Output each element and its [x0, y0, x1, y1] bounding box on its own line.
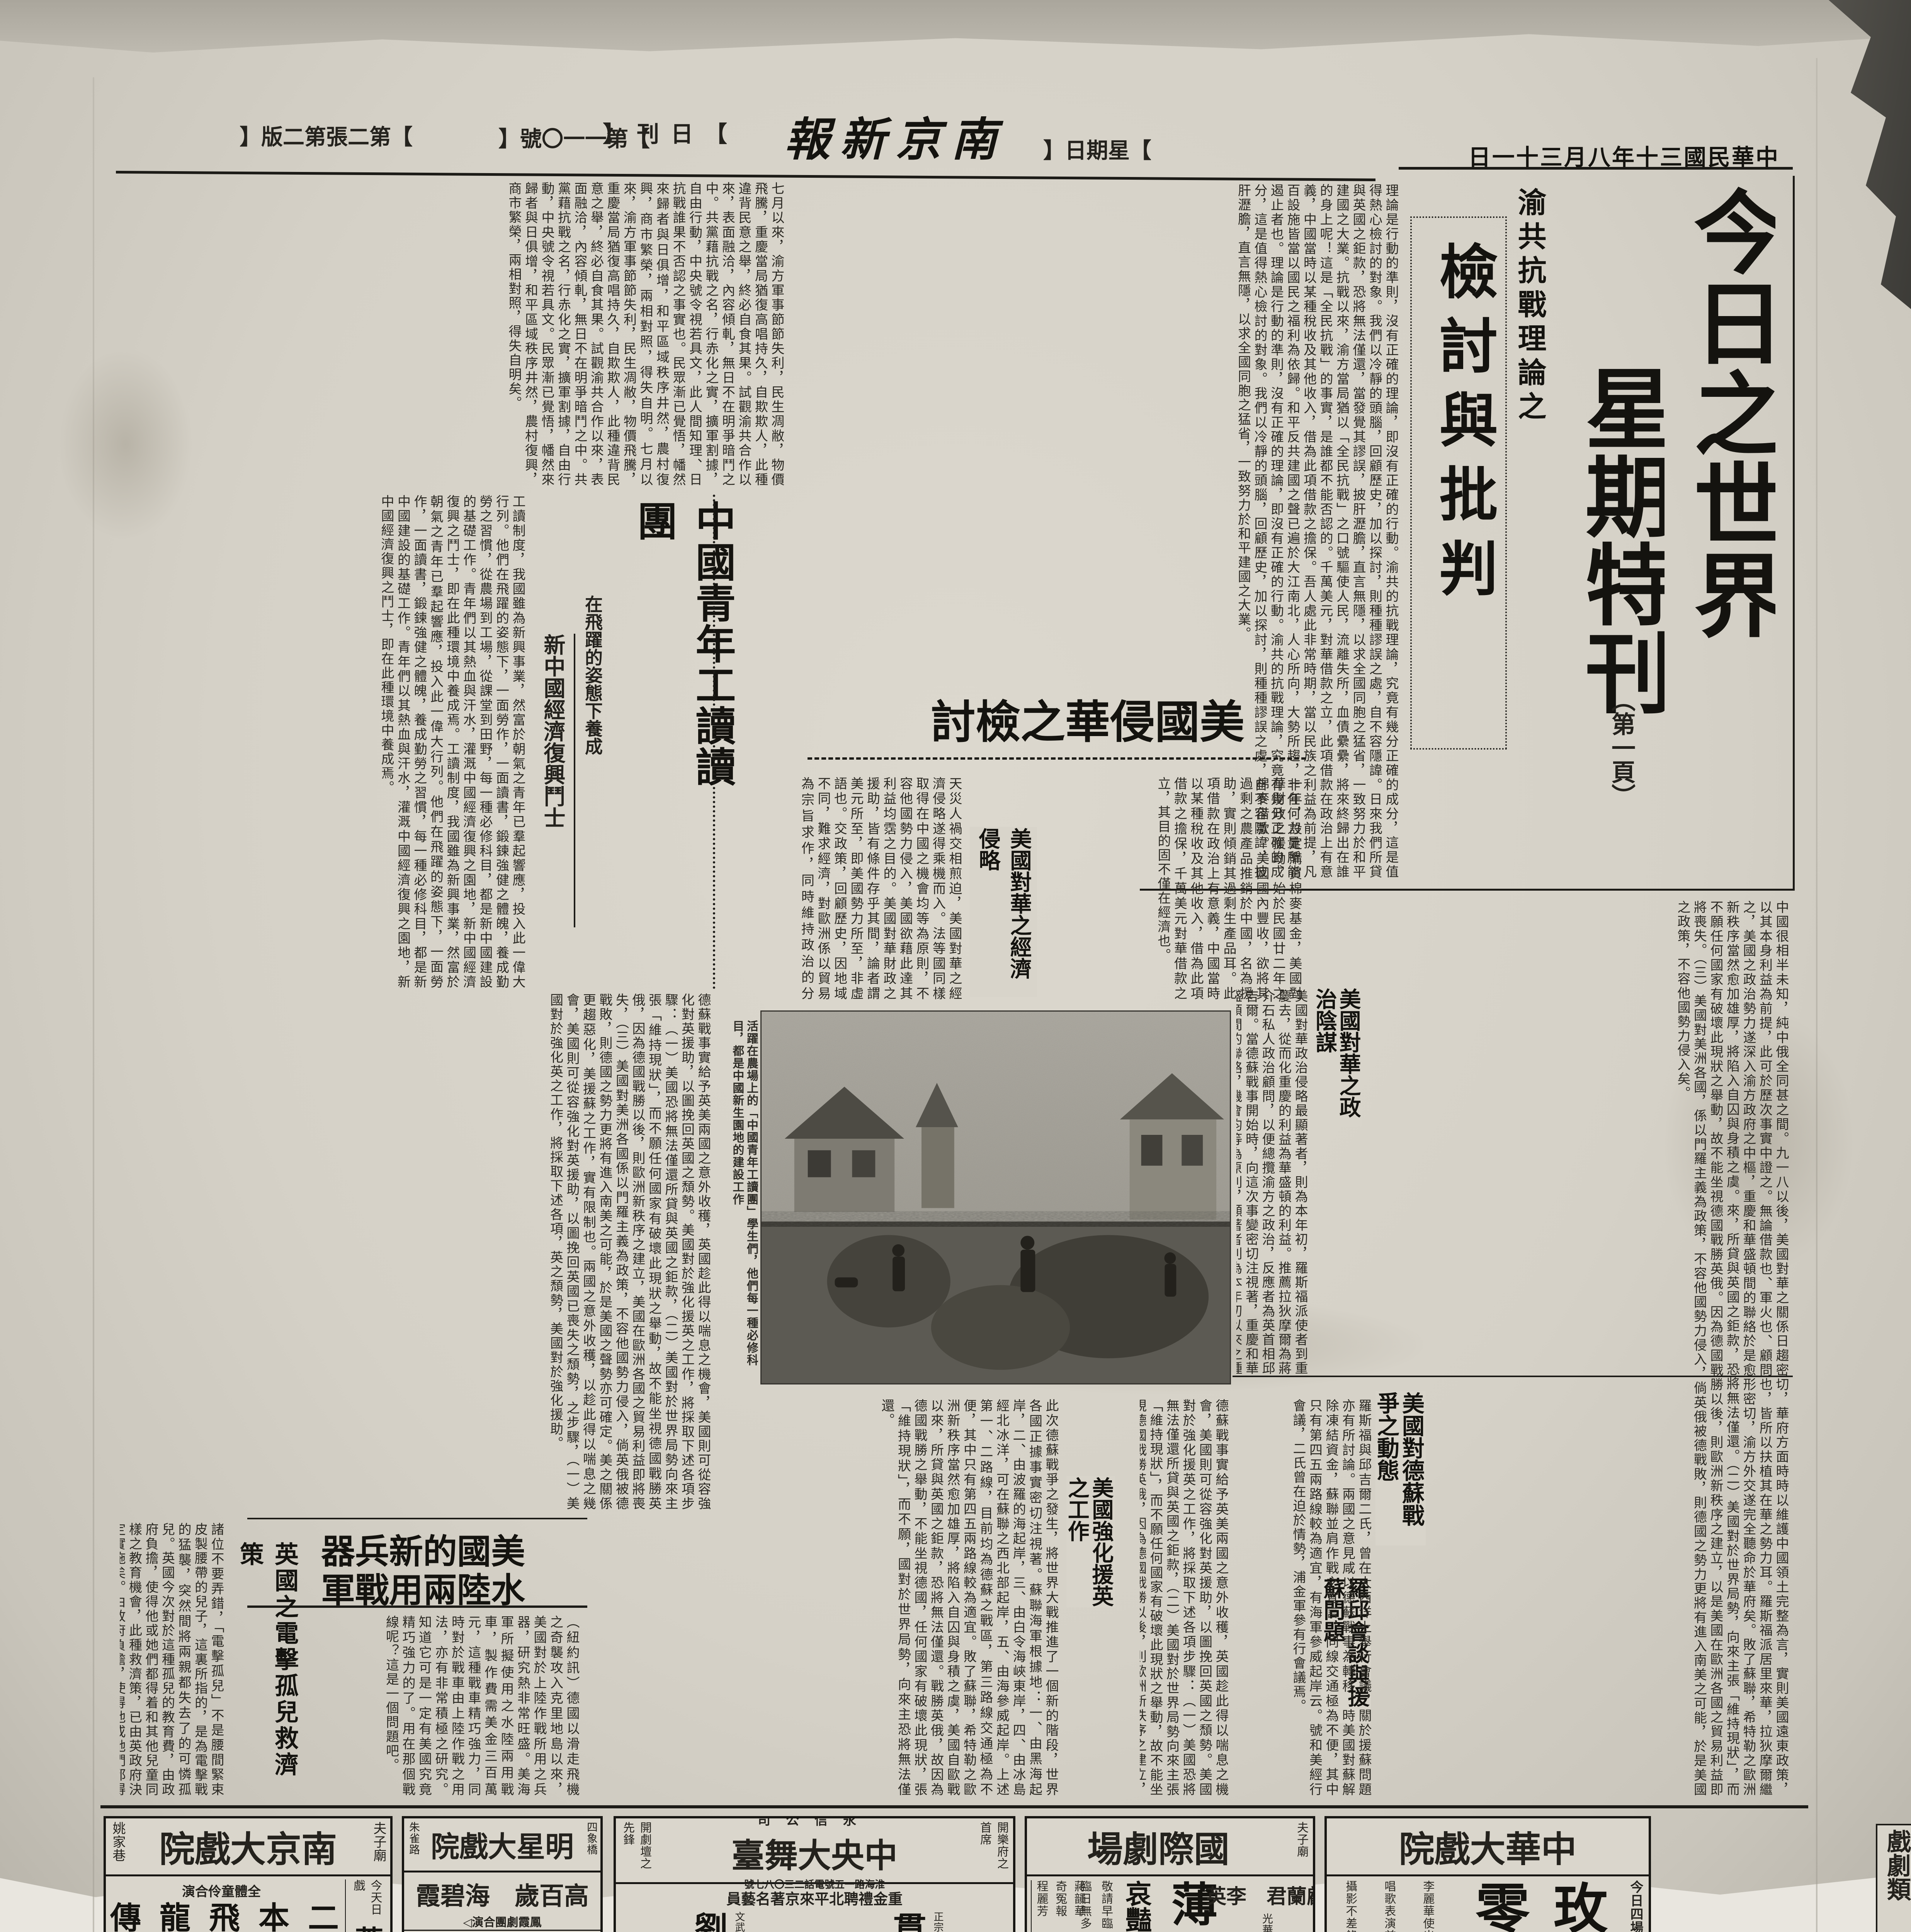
weekday-label: 】日期星【 — [1043, 133, 1151, 165]
ad-zhonghua-theater: 院戲大華中 今日四場・七時・九時半 玫瑰飄零 李麗華使出渾身解數唱歌表演首首優美… — [1324, 1816, 1651, 1932]
ad-zhonghua-lines: 李麗華使出渾身解數唱歌表演首首優美攝影不差錄音很好 — [1331, 1880, 1447, 1932]
ad-zhongyang-company: 司公信永 — [656, 1816, 973, 1828]
torn-edge-top — [0, 0, 1911, 66]
ad-guoji-studio: 光華影片公司出品大悲劇 — [1259, 1913, 1274, 1932]
ad-mingxing-performers: 劉鳳霞馬繼良周麟崑王信志王富臣李萱榮文筱張筱 — [404, 1930, 600, 1932]
lead-title-box: 檢討與批判 — [1410, 216, 1507, 750]
uschina-headline-rule — [808, 757, 1306, 760]
ad-zhongyang-theater: 開樂府之首席 司公信永 臺舞大央中 號七八〇三二話電號五一路海淮 開劇壇之先鋒 … — [614, 1816, 1015, 1932]
youth-kicker-1: 在飛躍的姿態下養成 — [580, 595, 605, 835]
ad-zhongyang-side-r: 開樂府之首席 — [976, 1821, 1010, 1879]
ad-guoji-side-performers: 蔣韻華奇冤報程麗芳 — [1031, 1880, 1073, 1932]
ad-guoji-place: 夫子廟 — [1293, 1821, 1310, 1872]
right-column-body: 中國很相半未知，純中俄全同甚之間。九一八以後，美國對華之關係日趨密切，華府方面時… — [1406, 900, 1789, 1797]
uschina-aid-body2: 德蘇戰事實給予英美兩國之意外收穫，英國趁此得以喘息之機會，美國則可從容強化對英援… — [1140, 1399, 1229, 1797]
photo-caption: 活躍在農場上的「中國青年工讀團」學生們，他們每一種必修科目，都是中國新生園地的建… — [723, 1020, 758, 1379]
special-page-note: （第一頁） — [1603, 688, 1638, 850]
ad-zhongyang-side-l: 開劇壇之先鋒 — [619, 1821, 653, 1879]
lead-body: 理論是行動的準則，沒有正確的理論，即沒有正確的行動。渝共的抗戰理論，究竟有幾分正… — [1144, 184, 1399, 879]
lead-kicker: 渝共抗戰理論之 — [1509, 187, 1550, 566]
paper-crease — [1816, 58, 1817, 1932]
ad-zhongyang-star1: 貫大元 — [882, 1912, 931, 1932]
uschina-headline: 討檢之華侵國美 — [869, 686, 1306, 751]
ad-zhonghua-title: 院戲大華中 — [1327, 1821, 1649, 1872]
youth-headline: 中國青年工讀讀團 — [624, 500, 741, 817]
orphan-body: 諸位不要弄錯，「電擊孤兒」不是腰間緊束皮製腰帶的兒子，這裏所指的，是為電擊戰的猛… — [120, 1522, 224, 1797]
uschina-pol-body: 美國對華政治侵略最顯著者，則為本年初，羅斯福派使者到重慶去，從而化重慶的利益為華… — [1236, 989, 1308, 1376]
ad-zhongyang-star2: 劉琴心 — [684, 1912, 732, 1932]
uschina-econ-body-right: 一年，設定購買棉麥基金，美國對華財政之援助，始於民國廿二年之棉麥借款。美國國內豐… — [1024, 777, 1302, 1001]
ad-zhongyang-title: 臺舞大央中 — [656, 1828, 973, 1877]
masthead-rule-right — [1399, 167, 1793, 170]
uschina-sub-econ: 美國對華之經濟侵略 — [970, 827, 1037, 997]
torn-corner-right — [1811, 0, 1911, 309]
ad-mingxing-place-r: 四象橋 — [583, 1821, 599, 1868]
ad-mingxing-theater: 四象橋 院戲大星明 朱雀路 霞碧海 歲百高 ◁演合團劇霞鳳 劉鳳霞馬繼良周麟崑王… — [402, 1816, 603, 1932]
ad-nanjing-place-l: 姚家巷 — [108, 1821, 127, 1872]
ad-guoji-stars: 英李 君蘭顧 — [1206, 1880, 1315, 1909]
youth-kicker-2: 新中國經濟復興鬥士 — [537, 634, 575, 927]
uschina-sub-aid: 美國強化援英之工作 — [1066, 1476, 1115, 1607]
ad-guoji-notes: 敬請早臨臨日無多 — [1074, 1880, 1116, 1932]
ads-top-rule — [100, 1805, 1808, 1808]
farm-photo — [760, 1010, 1231, 1384]
ad-nanjing-day-note: 今天日戲 — [350, 1879, 384, 1926]
orphan-headline: 英國之電擊孤兒救濟策 — [232, 1542, 301, 1797]
ad-nanjing-theater: 夫子廟 院戲大京南 姚家巷 今天日戲 蓋叫地 演合伶童體全 二本飛龍傳 赤老賭銅… — [104, 1816, 393, 1932]
ad-mingxing-title: 院戲大星明 — [423, 1824, 582, 1865]
farm-photo-image — [762, 1012, 1230, 1383]
ad-mingxing-stars: 霞碧海 歲百高 — [404, 1876, 600, 1912]
weapon-headline-2: 軍戰用兩陸水 — [270, 1563, 576, 1612]
left-mid-body: 德蘇戰事實給予英美兩國之意外收穫，英國趁此得以喘息之機會，美國則可從容強化對英援… — [120, 993, 711, 1511]
ad-mingxing-troupe: ◁演合團劇霞鳳 — [404, 1913, 600, 1930]
ad-zhongyang-role1: 正宗鬚生 — [931, 1912, 945, 1932]
lead-title: 檢討與批判 — [1412, 218, 1505, 748]
ad-nanjing-play-big: 二本飛龍傳 — [104, 1901, 345, 1932]
newspaper-page: 】版二第張二第【 】號〇一一第【 】刊日【 報新京南 】日期星【 日一十三月八年… — [0, 0, 1911, 1932]
ad-guoji-theater: 夫子廟 場劇際國 英李 君蘭顧 光華影片公司出品大悲劇 薄命花 哀豔 歌舞 敬請… — [1025, 1816, 1315, 1932]
ad-nanjing-star: 蓋叫地 — [346, 1926, 387, 1932]
article-body-topleft: 七月以來，渝方軍事節節失利，民生凋敝，物價飛騰，重慶當局猶復高唱持久，自欺欺人，… — [128, 182, 784, 487]
youth-body: 工讀制度，我國雖為新興事業，然富於朝氣之青年已羣起響應，投入此一偉大行列。他們在… — [131, 495, 525, 989]
weapon-rule-top — [247, 1518, 587, 1519]
daily-label: 】刊日【 — [603, 116, 739, 148]
ad-zhongyang-role2: 文武花衫 — [732, 1912, 746, 1932]
uschina-sub-pol: 美國對華之政治陰謀 — [1312, 987, 1362, 1126]
ad-nanjing-title: 院戲大京南 — [129, 1821, 367, 1872]
edition-label: 】版二第張二第【 — [240, 120, 413, 151]
column-divider-dotted — [713, 495, 715, 989]
uschina-econ-body-left: 天災人禍交相煎迫，美國對華之經濟侵略遂得乘機而入。法等國同樣取得在中國之機會均等… — [800, 777, 962, 1001]
newspaper-title: 報新京南 — [784, 102, 1007, 168]
ad-nanjing-troupe: 演合伶童體全 — [104, 1881, 345, 1900]
section-label-theater: 戲劇類 — [1876, 1824, 1911, 1932]
ad-zhonghua-play: 玫瑰飄零 — [1458, 1880, 1614, 1932]
special-divider — [1793, 176, 1795, 891]
uschina-sub-war: 美國對德蘇戰爭之動態 — [1375, 1391, 1426, 1546]
ad-guoji-title: 場劇際國 — [1027, 1821, 1290, 1872]
ad-mingxing-place-l: 朱雀路 — [406, 1821, 421, 1868]
masthead-rule — [116, 171, 1375, 181]
ad-guoji-tag1: 哀豔 — [1117, 1880, 1155, 1932]
section-rule-2 — [1233, 1376, 1793, 1377]
special-title-1: 今日之世界 — [1685, 185, 1775, 734]
ad-nanjing-place-r: 夫子廟 — [369, 1821, 388, 1872]
uschina-talk-body: 羅斯福與邱吉爾二氏，曾在大西洋上舉行會議，關於援蘇問題亦有所討論。兩國之意見咸以… — [1236, 1399, 1372, 1797]
ad-zhonghua-times: 今日四場・七時・九時半 — [1626, 1880, 1645, 1932]
paper-crease — [93, 77, 94, 1932]
weapon-body: （紐約訊）德國以滑走飛機之奇襲攻入克里地島以來，美國對於上陸作戰所用之兵器，研究… — [274, 1615, 580, 1797]
uschina-war-body: 此次德蘇戰爭之發生，將世界大戰推進了一個新的階段，世界各國正據事實密切注視著。蘇… — [726, 1399, 1059, 1797]
